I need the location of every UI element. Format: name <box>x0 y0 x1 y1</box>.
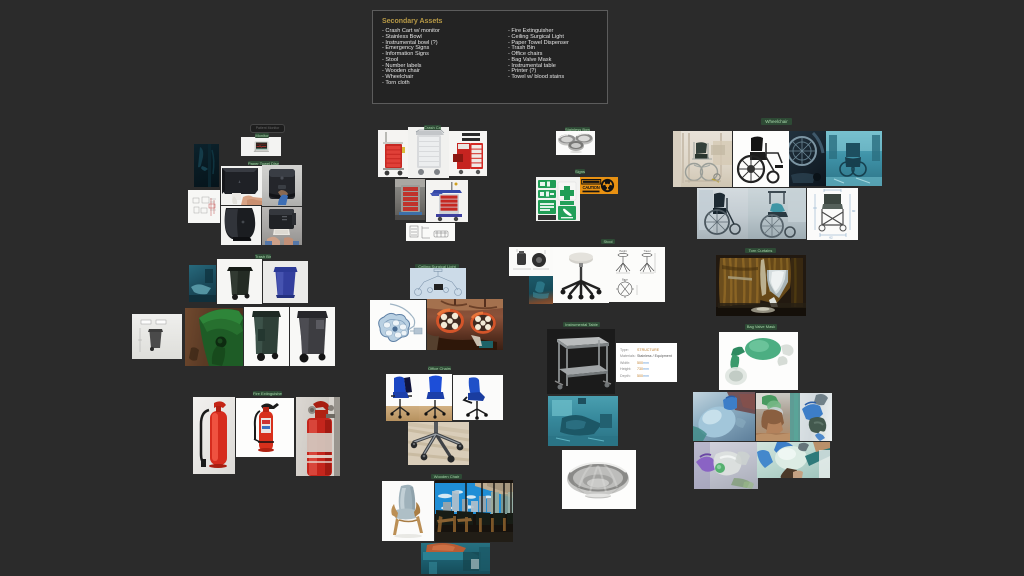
svg-text:62: 62 <box>829 236 833 240</box>
svg-text:Travel: Travel <box>644 250 651 253</box>
svg-text:90: 90 <box>852 209 856 213</box>
svg-text:Height: Height <box>619 250 627 253</box>
svg-text:Base: Base <box>622 279 628 282</box>
svg-text:CAUTION: CAUTION <box>583 185 600 190</box>
